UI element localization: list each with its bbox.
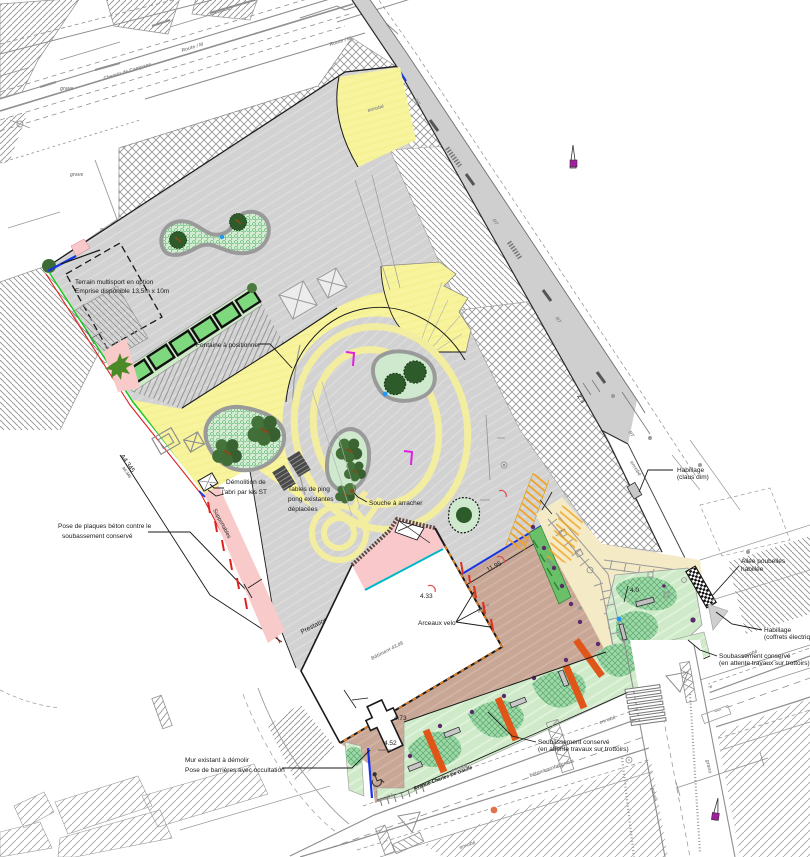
svg-text:Arceaux velo: Arceaux velo xyxy=(418,620,456,627)
svg-text:Soubassement conservé: Soubassement conservé xyxy=(719,653,791,660)
svg-text:grave: grave xyxy=(69,172,84,178)
svg-text:(en attente travaux sur trotto: (en attente travaux sur trottoirs) xyxy=(719,660,810,667)
svg-text:Mur existant à démolir: Mur existant à démolir xyxy=(185,757,250,764)
svg-text:Tables de ping: Tables de ping xyxy=(288,486,330,493)
svg-text:Pose de barrières avec occulta: Pose de barrières avec occultation xyxy=(185,767,285,774)
svg-text:(en attente travaux sur trotto: (en attente travaux sur trottoirs) xyxy=(538,746,629,753)
svg-text:habillée: habillée xyxy=(741,566,764,573)
svg-text:Soubassement conservé: Soubassement conservé xyxy=(538,739,610,746)
svg-text:pong existantes: pong existantes xyxy=(288,496,334,503)
svg-text:4.73: 4.73 xyxy=(394,715,407,722)
svg-text:soubassement conservé: soubassement conservé xyxy=(62,533,133,540)
svg-text:l'abri par les ST: l'abri par les ST xyxy=(222,489,267,496)
svg-text:(coffrets électriques): (coffrets électriques) xyxy=(764,634,810,641)
svg-text:grave: grave xyxy=(59,86,74,92)
svg-text:(claus dim): (claus dim) xyxy=(677,474,709,481)
svg-text:déplacées: déplacées xyxy=(288,506,318,513)
svg-text:Souche à arracher: Souche à arracher xyxy=(369,500,423,507)
svg-text:4.0: 4.0 xyxy=(630,587,639,594)
svg-text:4.33: 4.33 xyxy=(420,593,433,600)
svg-text:4.52: 4.52 xyxy=(384,740,397,747)
svg-text:Terrain multisport en option: Terrain multisport en option xyxy=(75,279,154,286)
svg-text:Habillage: Habillage xyxy=(764,627,791,634)
svg-text:Emprise disponible 13,5m x 10m: Emprise disponible 13,5m x 10m xyxy=(75,288,169,295)
svg-text:Fontaine à positionner: Fontaine à positionner xyxy=(196,342,261,349)
svg-text:Allée poubelles: Allée poubelles xyxy=(741,558,786,565)
svg-text:Habillage: Habillage xyxy=(677,467,704,474)
svg-text:Démolition de: Démolition de xyxy=(226,479,266,486)
svg-text:Pose de plaques béton contre l: Pose de plaques béton contre le xyxy=(58,523,152,530)
